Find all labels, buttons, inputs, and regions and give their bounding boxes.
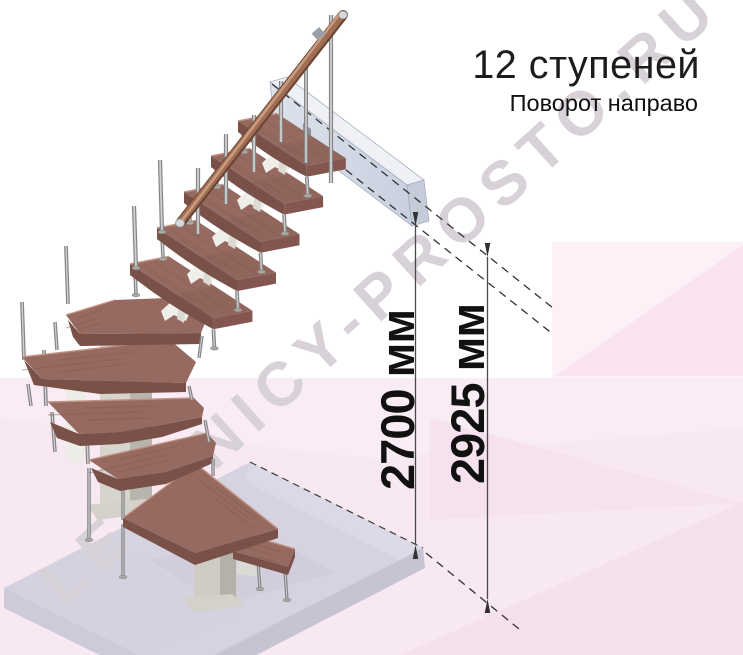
svg-text:2700 мм: 2700 мм: [371, 310, 424, 490]
svg-text:12 ступеней: 12 ступеней: [472, 43, 700, 87]
svg-text:Поворот направо: Поворот направо: [510, 90, 698, 116]
svg-text:2925 мм: 2925 мм: [441, 304, 494, 484]
